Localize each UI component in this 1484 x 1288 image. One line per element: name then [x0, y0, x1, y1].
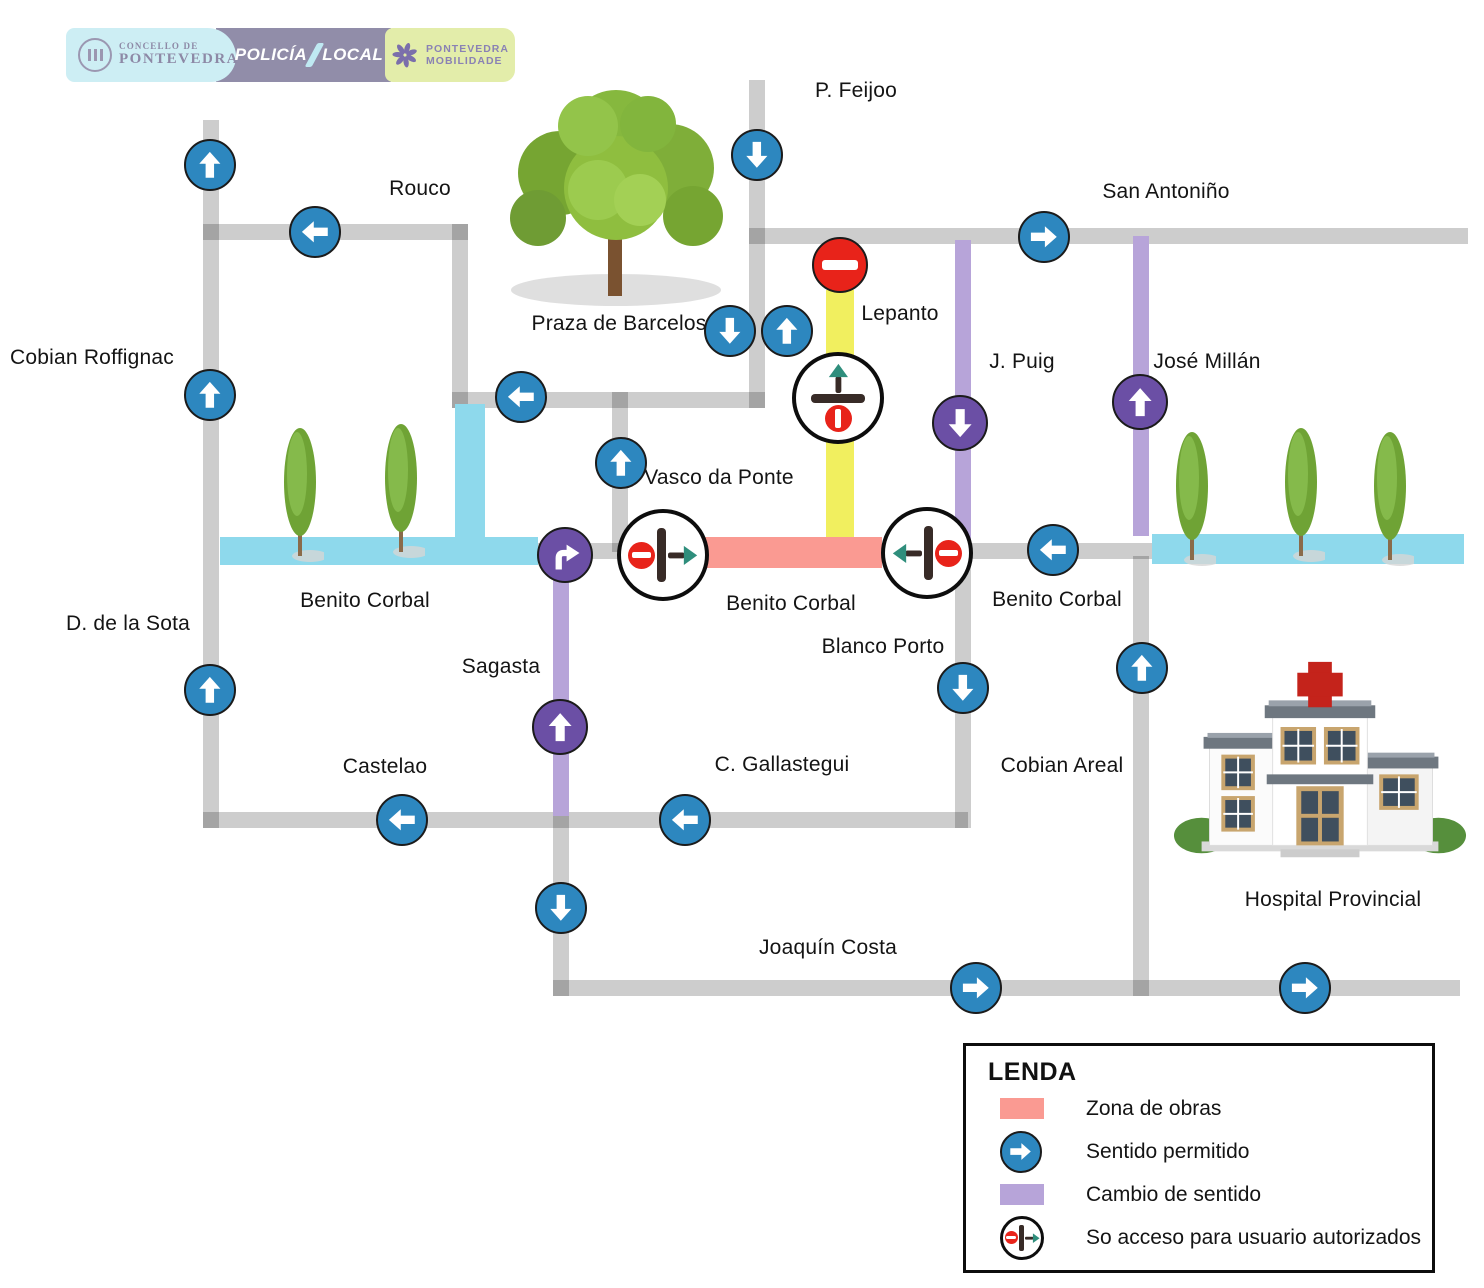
- authorized-arrow-left-icon: [892, 541, 922, 565]
- policia-local-wordmark: POLICÍA LOCAL: [234, 28, 384, 82]
- one-way-down-sign: [731, 129, 783, 181]
- one-way-left-sign: [495, 371, 547, 423]
- street-label-cobian-roffignac: Cobian Roffignac: [10, 346, 174, 370]
- street-label-benito-corbal-center: Benito Corbal: [726, 592, 856, 616]
- legend: LENDA Zona de obras Sentido permitido Ca…: [963, 1043, 1435, 1273]
- mobilidade-pinwheel-icon: [391, 41, 419, 69]
- traffic-map: PONTEVEDRA MOBILIDADE CONCELLO DE PONTEV…: [0, 0, 1484, 1288]
- street-label-sagasta: Sagasta: [462, 655, 540, 679]
- legend-item-label: Sentido permitido: [1086, 1140, 1249, 1164]
- one-way-down-sign: [535, 882, 587, 934]
- one-way-up-sign: [184, 139, 236, 191]
- one-way-right-sign: [950, 962, 1002, 1014]
- poplar-tree-illustration: [1366, 428, 1414, 568]
- street-label-san-antonino: San Antoniño: [1102, 180, 1229, 204]
- concello-seal-icon: [78, 38, 112, 72]
- hospital-illustration: [1172, 652, 1468, 877]
- one-way-right-sign: [1279, 962, 1331, 1014]
- direction-change-down-sign: [932, 395, 988, 451]
- one-way-left-sign: [376, 794, 428, 846]
- street-label-blanco-porto: Blanco Porto: [822, 635, 945, 659]
- street-label-castelao: Castelao: [343, 755, 427, 779]
- band-j-puig: [955, 240, 971, 545]
- barrier-bar-icon: [657, 528, 666, 582]
- one-way-right-sign: [1018, 211, 1070, 263]
- street-label-benito-corbal-east: Benito Corbal: [992, 588, 1122, 612]
- authorized-arrow-right-icon: [668, 543, 698, 567]
- street-rouco-connector: [452, 224, 468, 408]
- one-way-up-sign: [595, 437, 647, 489]
- street-label-lepanto: Lepanto: [861, 302, 938, 326]
- pontevedra-mobilidade-badge: PONTEVEDRA MOBILIDADE: [385, 28, 515, 82]
- legend-item-allowed-direction: Sentido permitido: [988, 1130, 1432, 1173]
- allowed-direction-icon: [1000, 1131, 1042, 1173]
- one-way-up-sign: [761, 305, 813, 357]
- works-zone-swatch: [1000, 1098, 1044, 1119]
- one-way-up-sign: [184, 369, 236, 421]
- turn-right-sign: [537, 527, 593, 583]
- poplar-tree-illustration: [1277, 424, 1325, 564]
- concello-pontevedra-badge: CONCELLO DE PONTEVEDRA: [66, 28, 236, 82]
- authorized-access-sign-right: [617, 509, 709, 601]
- one-way-left-sign: [1027, 524, 1079, 576]
- street-label-joaquin-costa: Joaquín Costa: [759, 936, 897, 960]
- street-san-antonino: [749, 228, 1468, 244]
- band-sagasta: [553, 561, 569, 816]
- poplar-tree-illustration: [1168, 428, 1216, 568]
- street-label-praza-de-barcelos: Praza de Barcelos: [532, 312, 707, 336]
- authorized-access-sign-left: [881, 507, 973, 599]
- authorized-arrow-up-icon: [824, 363, 852, 393]
- barrier-bar-icon: [924, 526, 933, 580]
- one-way-down-sign: [937, 662, 989, 714]
- barrier-bar-icon: [811, 394, 865, 403]
- street-label-c-gallastegui: C. Gallastegui: [715, 753, 850, 777]
- street-label-benito-corbal-west: Benito Corbal: [300, 589, 430, 613]
- no-entry-mini-icon: [628, 542, 655, 569]
- no-entry-sign: [812, 237, 868, 293]
- one-way-left-sign: [659, 794, 711, 846]
- street-castelao-gallastegui: [203, 812, 968, 828]
- band-benito-corbal-connector: [455, 404, 485, 544]
- legend-item-direction-change: Cambio de sentido: [988, 1173, 1432, 1216]
- street-label-p-feijoo: P. Feijoo: [815, 79, 897, 103]
- one-way-left-sign: [289, 206, 341, 258]
- one-way-down-sign: [704, 305, 756, 357]
- works-zone: [700, 537, 882, 568]
- authorized-access-sign-up: [792, 352, 884, 444]
- one-way-up-sign: [184, 664, 236, 716]
- one-way-up-sign: [1116, 642, 1168, 694]
- legend-item-label: Zona de obras: [1086, 1097, 1221, 1121]
- street-label-j-puig: J. Puig: [989, 350, 1055, 374]
- mobilidade-wordmark: PONTEVEDRA MOBILIDADE: [426, 43, 509, 67]
- legend-item-works-zone: Zona de obras: [988, 1087, 1432, 1130]
- direction-change-up-sign: [1112, 374, 1168, 430]
- legend-item-label: So acceso para usuario autorizados: [1086, 1226, 1421, 1250]
- direction-change-swatch: [1000, 1184, 1044, 1205]
- tree-illustration: [498, 68, 733, 313]
- poplar-tree-illustration: [276, 424, 324, 564]
- street-cobian-areal: [1133, 556, 1149, 996]
- authorized-access-icon: [1000, 1216, 1044, 1260]
- street-label-jose-millan: José Millán: [1153, 350, 1260, 374]
- legend-item-label: Cambio de sentido: [1086, 1183, 1261, 1207]
- no-entry-mini-icon: [825, 405, 852, 432]
- street-label-cobian-areal: Cobian Areal: [1001, 754, 1124, 778]
- legend-item-authorized-access: So acceso para usuario autorizados: [988, 1216, 1432, 1259]
- concello-wordmark: CONCELLO DE PONTEVEDRA: [119, 42, 239, 67]
- direction-change-up-sign: [532, 699, 588, 755]
- street-label-rouco: Rouco: [389, 177, 451, 201]
- street-label-d-de-la-sota: D. de la Sota: [66, 612, 190, 636]
- legend-title: LENDA: [988, 1058, 1432, 1087]
- poplar-tree-illustration: [377, 420, 425, 560]
- no-entry-mini-icon: [935, 540, 962, 567]
- street-label-vasco-da-ponte: Vasco da Ponte: [644, 466, 794, 490]
- logo-bar: PONTEVEDRA MOBILIDADE CONCELLO DE PONTEV…: [66, 28, 515, 82]
- street-label-hospital-provincial: Hospital Provincial: [1245, 888, 1422, 912]
